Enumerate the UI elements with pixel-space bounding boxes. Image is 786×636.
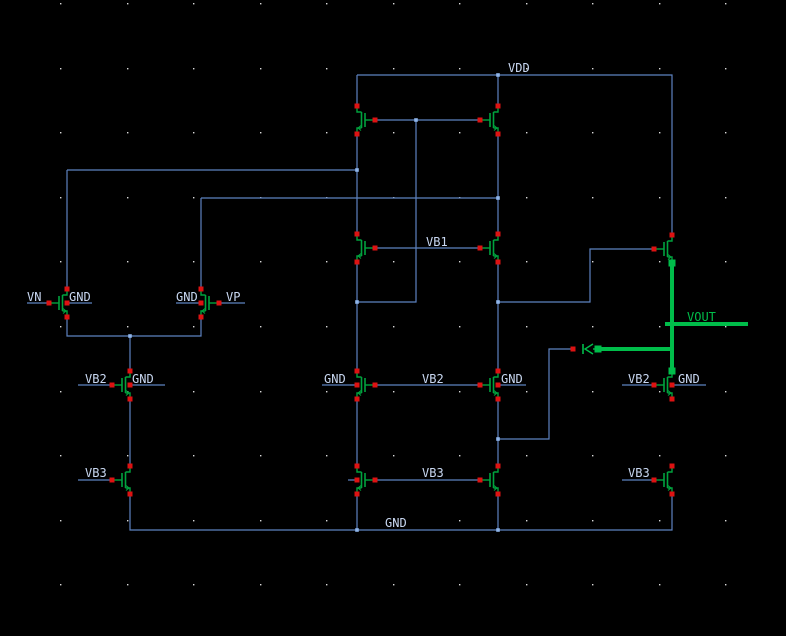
nmos-vb2-center-left[interactable] <box>350 369 378 402</box>
net-label-gnd-16[interactable]: GND <box>385 516 407 530</box>
nmos-cascode-right[interactable] <box>478 232 501 265</box>
nmos-vb3-left[interactable] <box>110 464 133 497</box>
net-label-vb3-14[interactable]: VB3 <box>422 466 444 480</box>
schematic-canvas[interactable]: VDDVB1VNGNDGNDVPVB2GNDGNDVB2GNDVB2GNDVB3… <box>0 0 786 636</box>
nmos-vb3-center-left[interactable] <box>350 464 378 497</box>
net-label-gnd-12[interactable]: GND <box>678 372 700 386</box>
wire-segment <box>357 75 672 235</box>
net-label-vb3-13[interactable]: VB3 <box>85 466 107 480</box>
net-label-gnd-4[interactable]: GND <box>176 290 198 304</box>
schematic-svg: VDDVB1VNGNDGNDVPVB2GNDGNDVB2GNDVB2GNDVB3… <box>0 0 786 636</box>
net-label-vb2-9[interactable]: VB2 <box>422 372 444 386</box>
pmos-load-right[interactable] <box>478 104 501 137</box>
pmos-load-left[interactable] <box>355 104 378 137</box>
nmos-vb3-output[interactable] <box>652 464 675 497</box>
net-label-vb2-11[interactable]: VB2 <box>628 372 650 386</box>
net-label-gnd-8[interactable]: GND <box>324 372 346 386</box>
net-label-gnd-10[interactable]: GND <box>501 372 523 386</box>
net-label-vout-17[interactable]: VOUT <box>687 310 716 324</box>
net-label-vb1-1[interactable]: VB1 <box>426 235 448 249</box>
wire-segment <box>357 120 416 302</box>
net-label-vb3-15[interactable]: VB3 <box>628 466 650 480</box>
net-label-vn-2[interactable]: VN <box>27 290 41 304</box>
wire-segment <box>498 349 573 439</box>
net-label-vp-5[interactable]: VP <box>226 290 240 304</box>
net-label-gnd-7[interactable]: GND <box>132 372 154 386</box>
wire-net[interactable] <box>27 75 706 530</box>
net-label-vdd-0[interactable]: VDD <box>508 61 530 75</box>
compensation-device[interactable] <box>571 344 602 354</box>
grid-dots <box>60 3 726 585</box>
selected-net-vout[interactable] <box>595 260 749 375</box>
wire-segment <box>498 249 654 302</box>
net-label-vb2-6[interactable]: VB2 <box>85 372 107 386</box>
nmos-vb3-center-right[interactable] <box>478 464 501 497</box>
wire-segment <box>67 317 201 336</box>
nmos-cascode-left[interactable] <box>355 232 378 265</box>
net-label-gnd-3[interactable]: GND <box>69 290 91 304</box>
